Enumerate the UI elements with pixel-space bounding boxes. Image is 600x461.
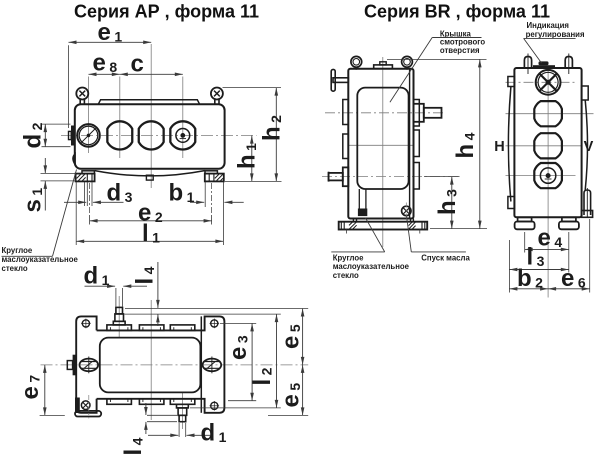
svg-text:маслоуказательное: маслоуказательное bbox=[333, 262, 410, 271]
svg-text:отверстия: отверстия bbox=[440, 46, 480, 55]
svg-text:регулирования: регулирования bbox=[526, 30, 585, 39]
svg-text:Спуск масла: Спуск масла bbox=[421, 254, 470, 263]
svg-text:V: V bbox=[584, 139, 594, 155]
svg-text:Индикация: Индикация bbox=[527, 21, 569, 30]
svg-text:стекло: стекло bbox=[333, 271, 359, 280]
svg-text:Серия BR , форма 11: Серия BR , форма 11 bbox=[364, 2, 550, 22]
svg-text:Круглое: Круглое bbox=[333, 254, 364, 263]
svg-text:Круглое: Круглое bbox=[2, 246, 33, 255]
svg-text:стекло: стекло bbox=[2, 264, 28, 273]
svg-text:c: c bbox=[131, 51, 144, 78]
svg-text:Н: Н bbox=[494, 139, 504, 155]
